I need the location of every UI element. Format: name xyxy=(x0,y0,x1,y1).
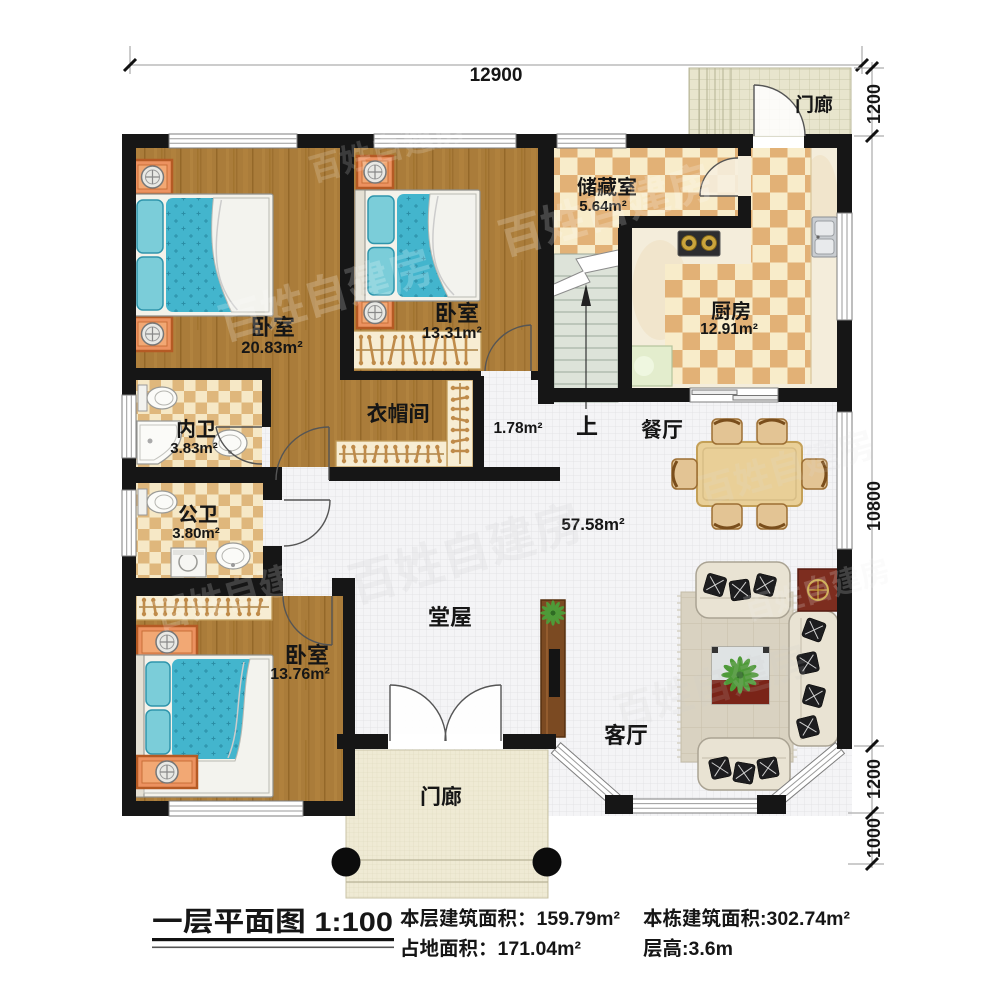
svg-text:占地面积：171.04m²: 占地面积：171.04m² xyxy=(400,932,581,961)
svg-text:堂屋: 堂屋 xyxy=(428,600,472,632)
svg-text:1200: 1200 xyxy=(860,759,886,799)
svg-text:1.78m²: 1.78m² xyxy=(493,416,542,438)
svg-text:13.31m²: 13.31m² xyxy=(422,319,482,343)
svg-text:本栋建筑面积:302.74m²: 本栋建筑面积:302.74m² xyxy=(643,902,850,931)
svg-text:衣帽间: 衣帽间 xyxy=(367,398,430,428)
svg-text:上: 上 xyxy=(576,409,598,441)
svg-text:13.76m²: 13.76m² xyxy=(270,660,330,684)
svg-text:1000: 1000 xyxy=(860,818,886,858)
svg-text:一层平面图 1:100: 一层平面图 1:100 xyxy=(152,900,393,939)
svg-text:1200: 1200 xyxy=(860,84,886,124)
svg-text:3.80m²: 3.80m² xyxy=(172,522,220,543)
svg-text:12900: 12900 xyxy=(470,60,523,87)
svg-text:门廊: 门廊 xyxy=(795,90,833,117)
svg-text:12.91m²: 12.91m² xyxy=(700,317,758,339)
svg-text:10800: 10800 xyxy=(860,481,886,531)
svg-text:本层建筑面积：159.79m²: 本层建筑面积：159.79m² xyxy=(400,902,620,931)
svg-text:餐厅: 餐厅 xyxy=(641,414,683,444)
svg-text:层高:3.6m: 层高:3.6m xyxy=(643,932,733,961)
svg-text:门廊: 门廊 xyxy=(420,781,462,811)
svg-text:3.83m²: 3.83m² xyxy=(170,437,218,458)
